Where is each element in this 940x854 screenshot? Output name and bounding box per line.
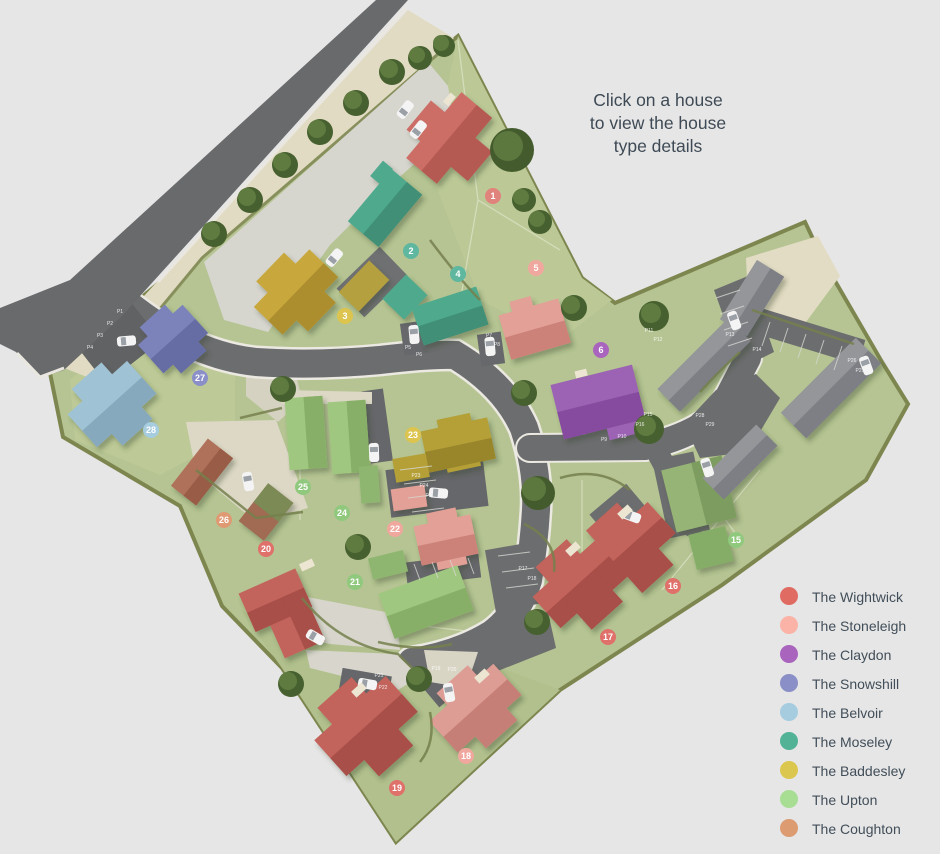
svg-text:15: 15 [731, 535, 741, 545]
svg-text:P3: P3 [97, 333, 103, 339]
svg-text:P21: P21 [375, 673, 384, 679]
svg-text:19: 19 [392, 783, 402, 793]
svg-text:P15: P15 [644, 412, 653, 418]
svg-text:The Wightwick: The Wightwick [812, 589, 904, 605]
svg-text:2: 2 [408, 246, 413, 256]
svg-text:27: 27 [195, 373, 205, 383]
svg-text:P10: P10 [618, 434, 627, 440]
svg-text:The Coughton: The Coughton [812, 821, 901, 837]
svg-text:The Claydon: The Claydon [812, 647, 891, 663]
svg-text:The Snowshill: The Snowshill [812, 676, 899, 692]
svg-text:P5: P5 [405, 345, 411, 351]
svg-text:P17: P17 [519, 566, 528, 572]
svg-text:6: 6 [598, 345, 603, 355]
svg-text:5: 5 [533, 263, 538, 273]
svg-text:16: 16 [668, 581, 678, 591]
svg-text:25: 25 [298, 482, 308, 492]
svg-text:The Upton: The Upton [812, 792, 877, 808]
svg-text:P6: P6 [416, 352, 422, 358]
svg-text:24: 24 [337, 508, 347, 518]
svg-text:P18: P18 [528, 576, 537, 582]
svg-text:Click on a house: Click on a house [593, 90, 722, 110]
svg-text:28: 28 [146, 425, 156, 435]
svg-text:P24: P24 [420, 483, 429, 489]
svg-text:The Belvoir: The Belvoir [812, 705, 883, 721]
svg-text:P13: P13 [726, 332, 735, 338]
svg-text:P14: P14 [753, 347, 762, 353]
svg-text:26: 26 [219, 515, 229, 525]
svg-text:type details: type details [614, 136, 703, 156]
svg-text:18: 18 [461, 751, 471, 761]
svg-text:P4: P4 [87, 345, 93, 351]
svg-text:P26: P26 [848, 358, 857, 364]
svg-text:P2: P2 [107, 321, 113, 327]
svg-text:The Baddesley: The Baddesley [812, 763, 905, 779]
svg-text:P12: P12 [654, 337, 663, 343]
svg-text:P16: P16 [636, 422, 645, 428]
svg-text:P29: P29 [706, 422, 715, 428]
svg-text:P23: P23 [412, 473, 421, 479]
svg-text:23: 23 [408, 430, 418, 440]
svg-text:P22: P22 [379, 685, 388, 691]
svg-text:P9: P9 [601, 437, 607, 443]
svg-text:4: 4 [455, 269, 460, 279]
svg-text:The Moseley: The Moseley [812, 734, 892, 750]
svg-text:P1: P1 [117, 309, 123, 315]
svg-text:P11: P11 [645, 328, 654, 334]
svg-text:3: 3 [342, 311, 347, 321]
svg-text:P20: P20 [448, 667, 457, 673]
svg-text:The Stoneleigh: The Stoneleigh [812, 618, 906, 634]
svg-text:1: 1 [490, 191, 495, 201]
svg-text:20: 20 [261, 544, 271, 554]
svg-text:to view the house: to view the house [590, 113, 726, 133]
svg-text:P28: P28 [696, 413, 705, 419]
svg-text:22: 22 [390, 524, 400, 534]
svg-text:17: 17 [603, 632, 613, 642]
svg-text:P19: P19 [432, 666, 441, 672]
svg-text:21: 21 [350, 577, 360, 587]
